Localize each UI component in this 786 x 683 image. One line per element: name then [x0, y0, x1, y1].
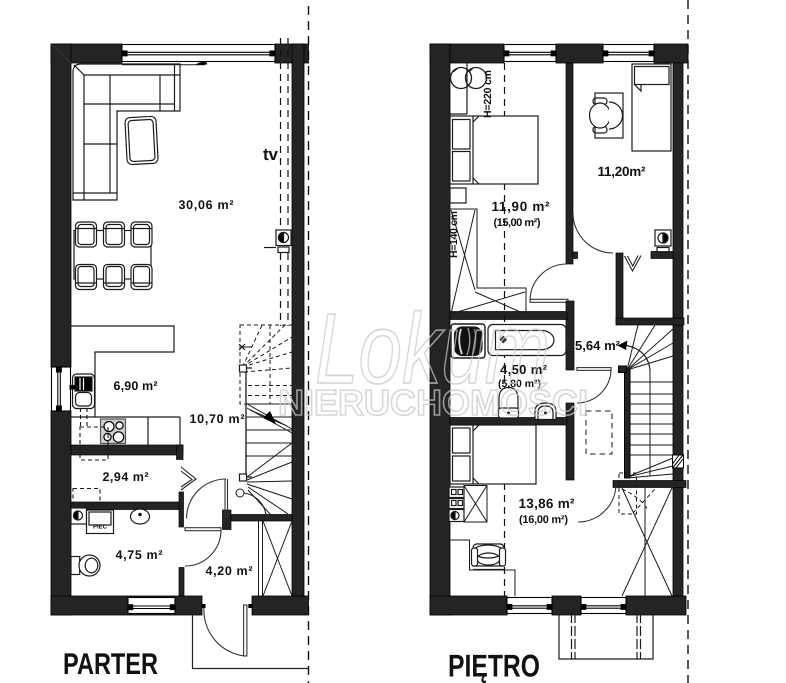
svg-text:6,90 m²: 6,90 m²	[114, 379, 158, 393]
svg-text:2,94 m²: 2,94 m²	[103, 470, 149, 484]
svg-text:10,70 m²: 10,70 m²	[190, 412, 245, 426]
svg-text:(15,00 m²): (15,00 m²)	[494, 217, 541, 229]
svg-text:PIĘTRO: PIĘTRO	[448, 648, 540, 683]
svg-text:5,64 m²: 5,64 m²	[575, 338, 621, 353]
svg-text:NIERUCHOMOŚCI: NIERUCHOMOŚCI	[278, 382, 588, 423]
svg-text:H=220 cm: H=220 cm	[482, 70, 494, 118]
svg-text:tv: tv	[263, 145, 279, 164]
svg-text:30,06 m²: 30,06 m²	[179, 198, 234, 212]
svg-text:4,20 m²: 4,20 m²	[206, 564, 253, 578]
svg-text:4,75 m²: 4,75 m²	[116, 548, 163, 562]
svg-text:H=140 cm: H=140 cm	[448, 211, 460, 258]
svg-text:11,90 m²: 11,90 m²	[492, 199, 551, 214]
svg-text:11,20m²: 11,20m²	[598, 164, 647, 179]
svg-text:PARTER: PARTER	[63, 648, 158, 681]
svg-text:PIEC: PIEC	[93, 524, 108, 531]
svg-text:(16,00 m²): (16,00 m²)	[519, 514, 568, 526]
svg-text:13,86 m²: 13,86 m²	[519, 496, 576, 511]
